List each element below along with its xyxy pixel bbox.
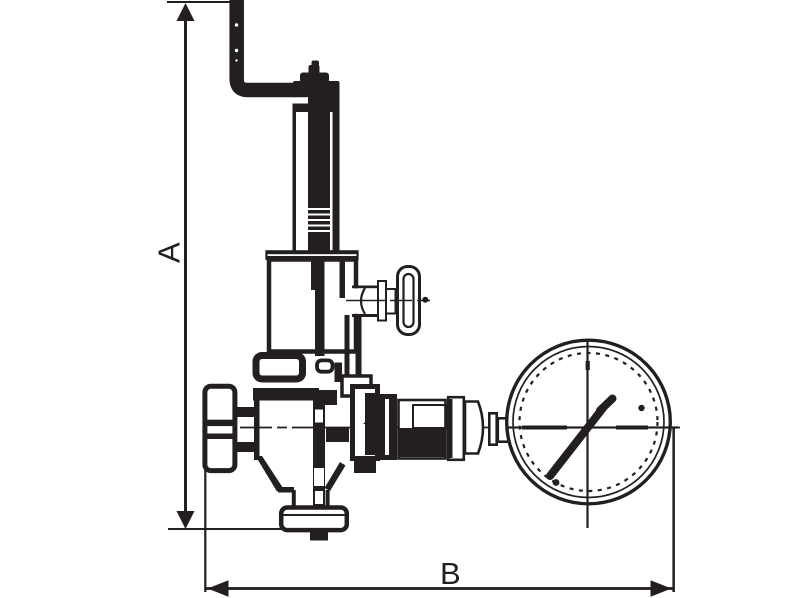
svg-text:A: A <box>152 242 187 263</box>
svg-text:B: B <box>440 556 461 591</box>
